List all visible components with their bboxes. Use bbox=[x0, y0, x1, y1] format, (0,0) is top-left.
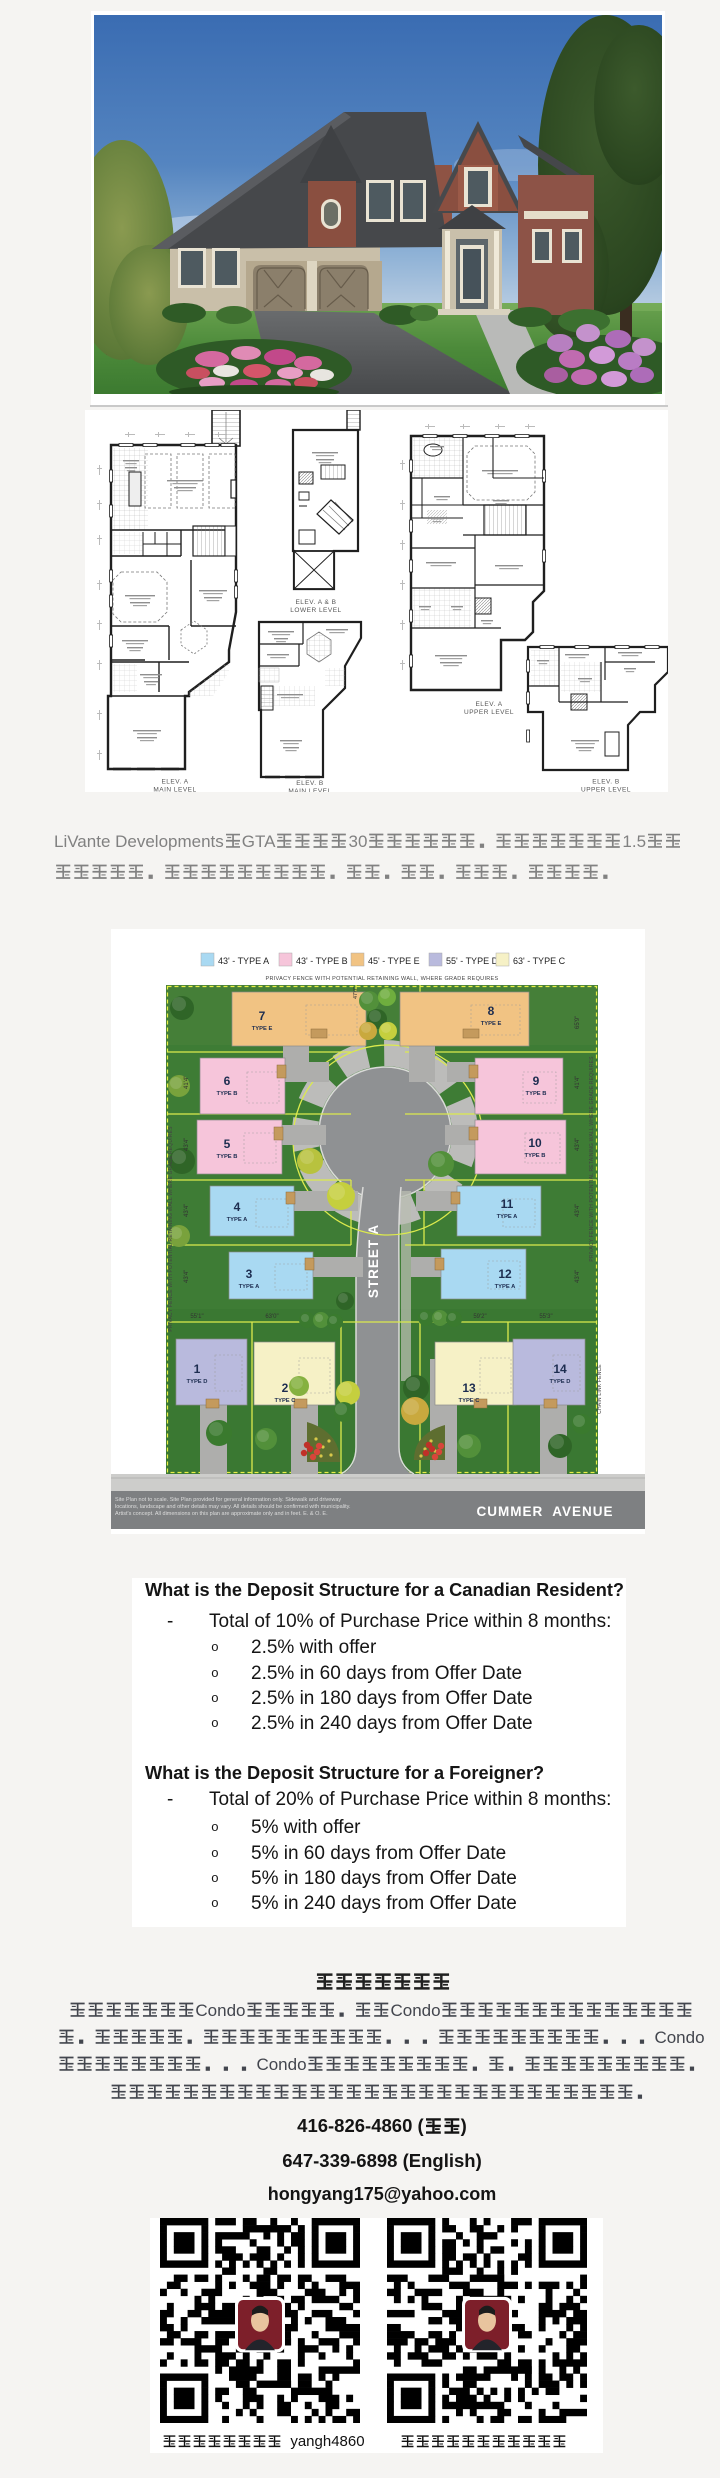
svg-text:4: 4 bbox=[234, 1200, 241, 1214]
svg-text:47'0": 47'0" bbox=[353, 987, 359, 999]
svg-text:TYPE A: TYPE A bbox=[495, 1284, 517, 1290]
svg-text:14: 14 bbox=[553, 1362, 567, 1376]
svg-text:TYPE E: TYPE E bbox=[252, 1026, 273, 1032]
svg-text:41'4": 41'4" bbox=[184, 1076, 190, 1089]
svg-text:43' - TYPE A: 43' - TYPE A bbox=[218, 956, 269, 966]
svg-text:UPPER LEVEL: UPPER LEVEL bbox=[581, 787, 631, 793]
svg-text:43'4": 43'4" bbox=[575, 1138, 581, 1151]
svg-text:12: 12 bbox=[498, 1267, 512, 1281]
svg-text:TYPE C: TYPE C bbox=[275, 1398, 297, 1404]
svg-text:TYPE C: TYPE C bbox=[459, 1398, 481, 1404]
svg-text:43'4": 43'4" bbox=[184, 1204, 190, 1217]
svg-text:6: 6 bbox=[224, 1074, 231, 1088]
svg-text:7: 7 bbox=[259, 1009, 266, 1023]
svg-text:ELEV. B: ELEV. B bbox=[592, 779, 619, 786]
svg-text:10: 10 bbox=[528, 1136, 542, 1150]
svg-text:MAIN LEVEL: MAIN LEVEL bbox=[288, 788, 331, 792]
svg-text:8: 8 bbox=[488, 1004, 495, 1018]
svg-text:43'4": 43'4" bbox=[575, 1204, 581, 1217]
svg-text:TYPE B: TYPE B bbox=[217, 1091, 238, 1097]
svg-text:1: 1 bbox=[194, 1362, 201, 1376]
svg-text:55'1": 55'1" bbox=[190, 1314, 203, 1320]
svg-text:PRIVACY FENCE WITH POTENTIAL R: PRIVACY FENCE WITH POTENTIAL RETAINING W… bbox=[265, 976, 498, 982]
svg-text:Artist's concept. All dimensio: Artist's concept. All dimensions on this… bbox=[115, 1511, 328, 1517]
svg-text:11: 11 bbox=[501, 1197, 514, 1211]
svg-text:13: 13 bbox=[462, 1381, 476, 1395]
svg-text:TYPE A: TYPE A bbox=[497, 1214, 519, 1220]
svg-text:MAIN LEVEL: MAIN LEVEL bbox=[153, 787, 196, 793]
svg-text:CHAIN LINK FENCE: CHAIN LINK FENCE bbox=[597, 1364, 603, 1414]
svg-text:41'4": 41'4" bbox=[575, 1076, 581, 1089]
svg-text:TYPE B: TYPE B bbox=[525, 1153, 546, 1159]
svg-text:TYPE B: TYPE B bbox=[526, 1091, 547, 1097]
svg-text:ELEV. A & B: ELEV. A & B bbox=[295, 599, 336, 606]
svg-text:TYPE A: TYPE A bbox=[227, 1217, 249, 1223]
svg-text:PRIVACY FENCE WITH POTENTIAL R: PRIVACY FENCE WITH POTENTIAL RETAINING W… bbox=[168, 1126, 174, 1332]
svg-text:ELEV. B: ELEV. B bbox=[296, 780, 323, 787]
svg-text:ELEV. A: ELEV. A bbox=[475, 701, 502, 708]
svg-text:9: 9 bbox=[533, 1074, 540, 1088]
svg-text:45' - TYPE E: 45' - TYPE E bbox=[368, 956, 420, 966]
svg-text:Site Plan not to scale. Site P: Site Plan not to scale. Site Plan provid… bbox=[115, 1497, 341, 1503]
svg-text:ELEV. A: ELEV. A bbox=[161, 779, 188, 786]
svg-text:43'4": 43'4" bbox=[575, 1270, 581, 1283]
svg-text:65'9": 65'9" bbox=[575, 1016, 581, 1029]
svg-text:TYPE A: TYPE A bbox=[239, 1284, 261, 1290]
svg-text:43'4": 43'4" bbox=[184, 1270, 190, 1283]
svg-text:2: 2 bbox=[282, 1381, 289, 1395]
svg-text:UPPER LEVEL: UPPER LEVEL bbox=[464, 709, 514, 716]
svg-text:LOWER LEVEL: LOWER LEVEL bbox=[290, 607, 341, 614]
svg-text:3: 3 bbox=[246, 1267, 253, 1281]
svg-text:CUMMER AVENUE: CUMMER AVENUE bbox=[476, 1504, 613, 1519]
svg-text:59'2": 59'2" bbox=[473, 1314, 486, 1320]
svg-text:TYPE B: TYPE B bbox=[217, 1154, 238, 1160]
svg-text:TYPE D: TYPE D bbox=[550, 1379, 571, 1385]
svg-text:63' - TYPE C: 63' - TYPE C bbox=[513, 956, 566, 966]
svg-text:43'4": 43'4" bbox=[184, 1138, 190, 1151]
svg-text:55' - TYPE D: 55' - TYPE D bbox=[446, 956, 499, 966]
svg-text:43' - TYPE B: 43' - TYPE B bbox=[296, 956, 348, 966]
svg-text:TYPE D: TYPE D bbox=[187, 1379, 208, 1385]
svg-text:locations, landscape and other: locations, landscape and other details m… bbox=[115, 1504, 351, 1510]
svg-text:PRIVACY FENCE WITH POTENTIAL R: PRIVACY FENCE WITH POTENTIAL RETAINING W… bbox=[589, 1056, 595, 1262]
svg-text:5: 5 bbox=[224, 1137, 231, 1151]
svg-text:TYPE E: TYPE E bbox=[481, 1021, 502, 1027]
svg-text:55'3": 55'3" bbox=[539, 1314, 552, 1320]
svg-text:63'0": 63'0" bbox=[265, 1314, 278, 1320]
